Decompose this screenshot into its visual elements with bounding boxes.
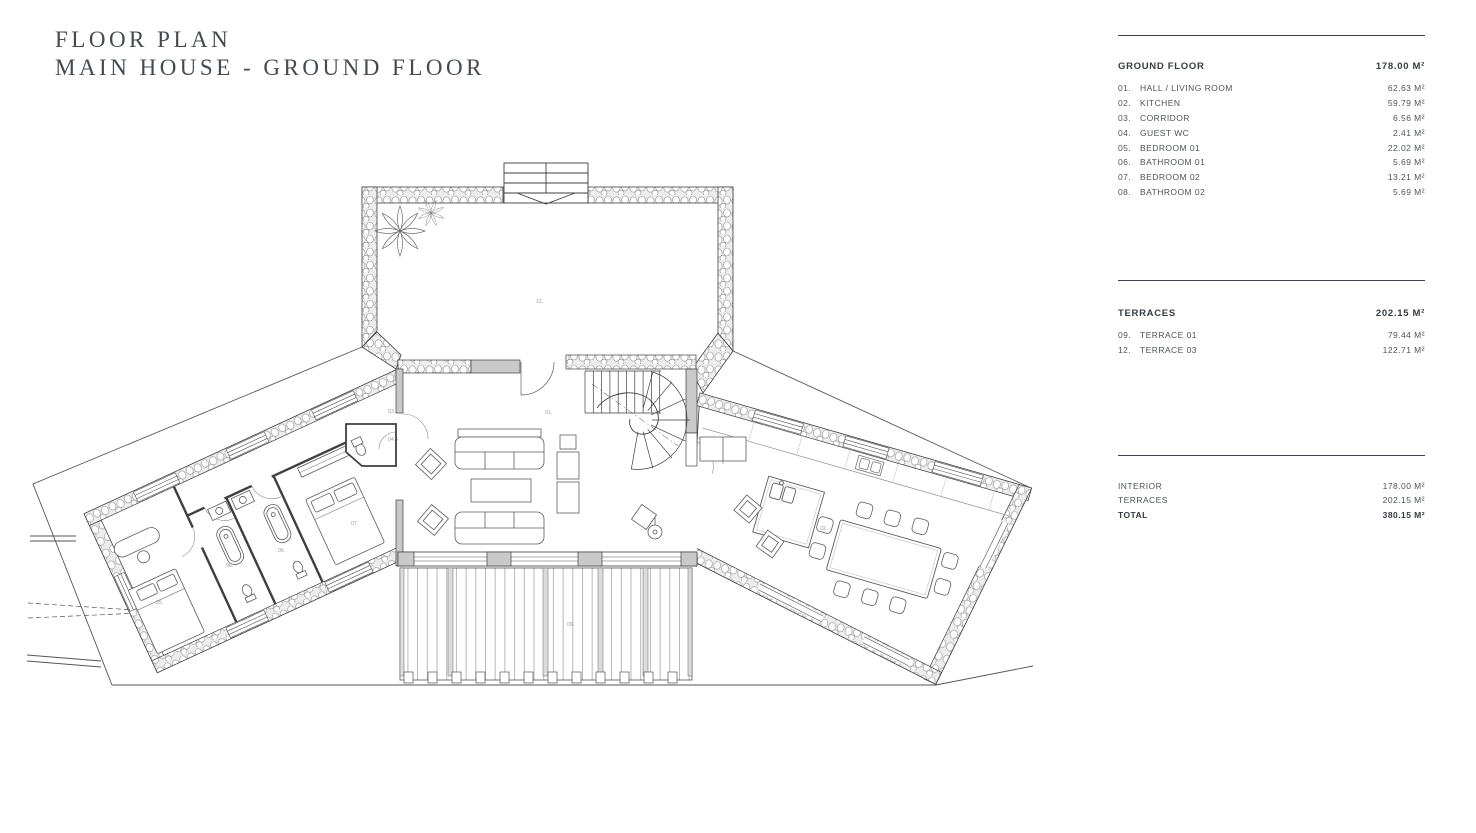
side-table — [557, 452, 579, 479]
hall-south-wall — [398, 552, 697, 566]
area-row: 09. TERRACE 01 79.44 M² — [1118, 330, 1425, 345]
area-row: 04. GUEST WC 2.41 M² — [1118, 128, 1425, 143]
room-label-bedroom01: 05. — [156, 600, 163, 606]
floor-plan-drawing: 01. 02. 03. 04. 05. 06. 07. 08. 09. 12. — [0, 0, 1060, 833]
summary-total-row: TOTAL 380.15 M² — [1118, 510, 1425, 524]
section-title: GROUND FLOOR — [1118, 61, 1205, 72]
ground-floor-header: GROUND FLOOR 178.00 M² — [1118, 61, 1425, 72]
room-label-kitchen: 02. — [820, 526, 827, 532]
section-total: 202.15 M² — [1376, 308, 1425, 319]
guest-wc — [346, 424, 396, 466]
summary-row: TERRACES 202.15 M² — [1118, 495, 1425, 509]
room-label-terrace01: 09. — [567, 622, 574, 628]
area-row: 02. KITCHEN 59.79 M² — [1118, 98, 1425, 113]
room-label-corridor: 03. — [388, 409, 395, 415]
area-row: 06. BATHROOM 01 5.69 M² — [1118, 157, 1425, 172]
sofa-bottom — [455, 512, 544, 544]
room-label-bathroom02: 08. — [226, 563, 233, 569]
room-label-bathroom01: 06. — [278, 548, 285, 554]
room-label-guest-wc: 04. — [388, 437, 395, 443]
section-title: TERRACES — [1118, 308, 1176, 319]
console-table — [458, 429, 541, 437]
summary-row: INTERIOR 178.00 M² — [1118, 481, 1425, 495]
floor-plan-page: FLOOR PLAN MAIN HOUSE - GROUND FLOOR — [0, 0, 1476, 833]
terraces-rows: 09. TERRACE 01 79.44 M² 12. TERRACE 03 1… — [1118, 330, 1425, 360]
divider — [1118, 280, 1425, 281]
section-total: 178.00 M² — [1376, 61, 1425, 72]
room-label-terrace03: 12. — [536, 299, 543, 305]
entry-stairs — [504, 163, 588, 204]
area-row: 12. TERRACE 03 122.71 M² — [1118, 345, 1425, 360]
ground-floor-rows: 01. HALL / LIVING ROOM 62.63 M² 02. KITC… — [1118, 83, 1425, 202]
area-row: 03. CORRIDOR 6.56 M² — [1118, 113, 1425, 128]
divider — [1118, 35, 1425, 36]
coffee-table — [471, 479, 531, 502]
side-table — [560, 435, 576, 449]
room-label-bedroom02: 07. — [351, 521, 358, 527]
terraces-header: TERRACES 202.15 M² — [1118, 308, 1425, 319]
deck-terrace — [400, 568, 692, 683]
divider — [1118, 455, 1425, 456]
area-row: 05. BEDROOM 01 22.02 M² — [1118, 143, 1425, 158]
side-table — [557, 482, 579, 513]
area-row: 01. HALL / LIVING ROOM 62.63 M² — [1118, 83, 1425, 98]
cabinet — [700, 437, 746, 461]
plant-icon — [375, 195, 449, 256]
area-row: 08. BATHROOM 02 5.69 M² — [1118, 187, 1425, 202]
sofa-top — [455, 437, 544, 469]
area-row: 07. BEDROOM 02 13.21 M² — [1118, 172, 1425, 187]
summary-rows: INTERIOR 178.00 M² TERRACES 202.15 M² TO… — [1118, 481, 1425, 524]
room-label-hall: 01. — [545, 410, 552, 416]
